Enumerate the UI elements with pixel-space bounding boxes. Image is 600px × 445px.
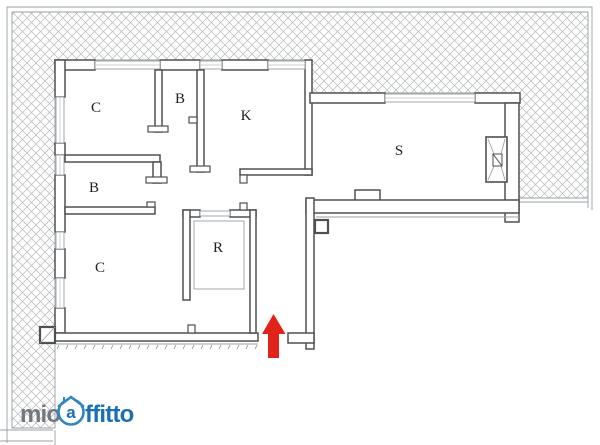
door-jamb [189,117,197,123]
wall-segment [240,169,312,175]
house-icon: a [59,397,84,425]
room-label: C [91,100,101,116]
wall-segment [475,93,520,103]
room-label: S [395,143,403,159]
wall-segment [160,60,200,70]
door-opening [200,211,230,216]
wall-segment [55,175,65,232]
door-jamb [148,126,168,132]
exterior-walls [55,60,520,349]
logo-text-affitto: ffitto [85,401,134,428]
terrace-hatch-area [12,12,588,428]
windows [56,61,475,308]
pavement-ticks [57,345,257,349]
column-pillar [315,220,328,233]
logo-text-mio: mio [20,401,60,428]
wall-segment [55,143,65,155]
logo-icon-letter: a [66,403,76,422]
door-jamb [188,325,195,333]
wall-segment [288,333,314,343]
wall-segment [65,207,155,214]
wall-segment [222,60,268,70]
wall-segment [305,60,312,175]
door-jamb [240,175,247,183]
wall-segment [55,308,65,333]
door-jamb [190,166,210,172]
wall-segment [197,70,204,172]
room-label: K [241,108,252,124]
wall-segment [306,198,314,349]
terrace-right-edge [519,198,588,208]
mioaffitto-logo: mio a ffitto [20,397,134,428]
door-jamb [147,202,155,207]
wall-segment [155,70,162,132]
terrace-left-end [0,430,55,445]
wall-segment [310,93,385,103]
wall-segment [55,333,258,341]
shaft-symbol-icon [486,137,507,182]
wall-segment [55,249,65,278]
corner-pillar [40,327,55,343]
wall-segment [65,155,160,162]
room-label: B [175,91,185,107]
room-label: B [89,180,99,196]
room-label: R [213,240,223,256]
wall-segment [183,210,190,300]
interior-walls [65,70,312,333]
door-jamb [146,177,167,183]
entrance-arrow-icon [262,314,286,358]
floorplan-image: C B K B C R S mio a ffitto [0,0,600,445]
wall-segment [306,200,519,213]
wall-segment [55,60,65,97]
pavement-edge [56,344,258,349]
room-label: C [95,260,105,276]
door-jamb [240,203,247,210]
floorplan-page: C B K B C R S mio a ffitto [0,0,600,445]
wall-segment [250,210,256,333]
